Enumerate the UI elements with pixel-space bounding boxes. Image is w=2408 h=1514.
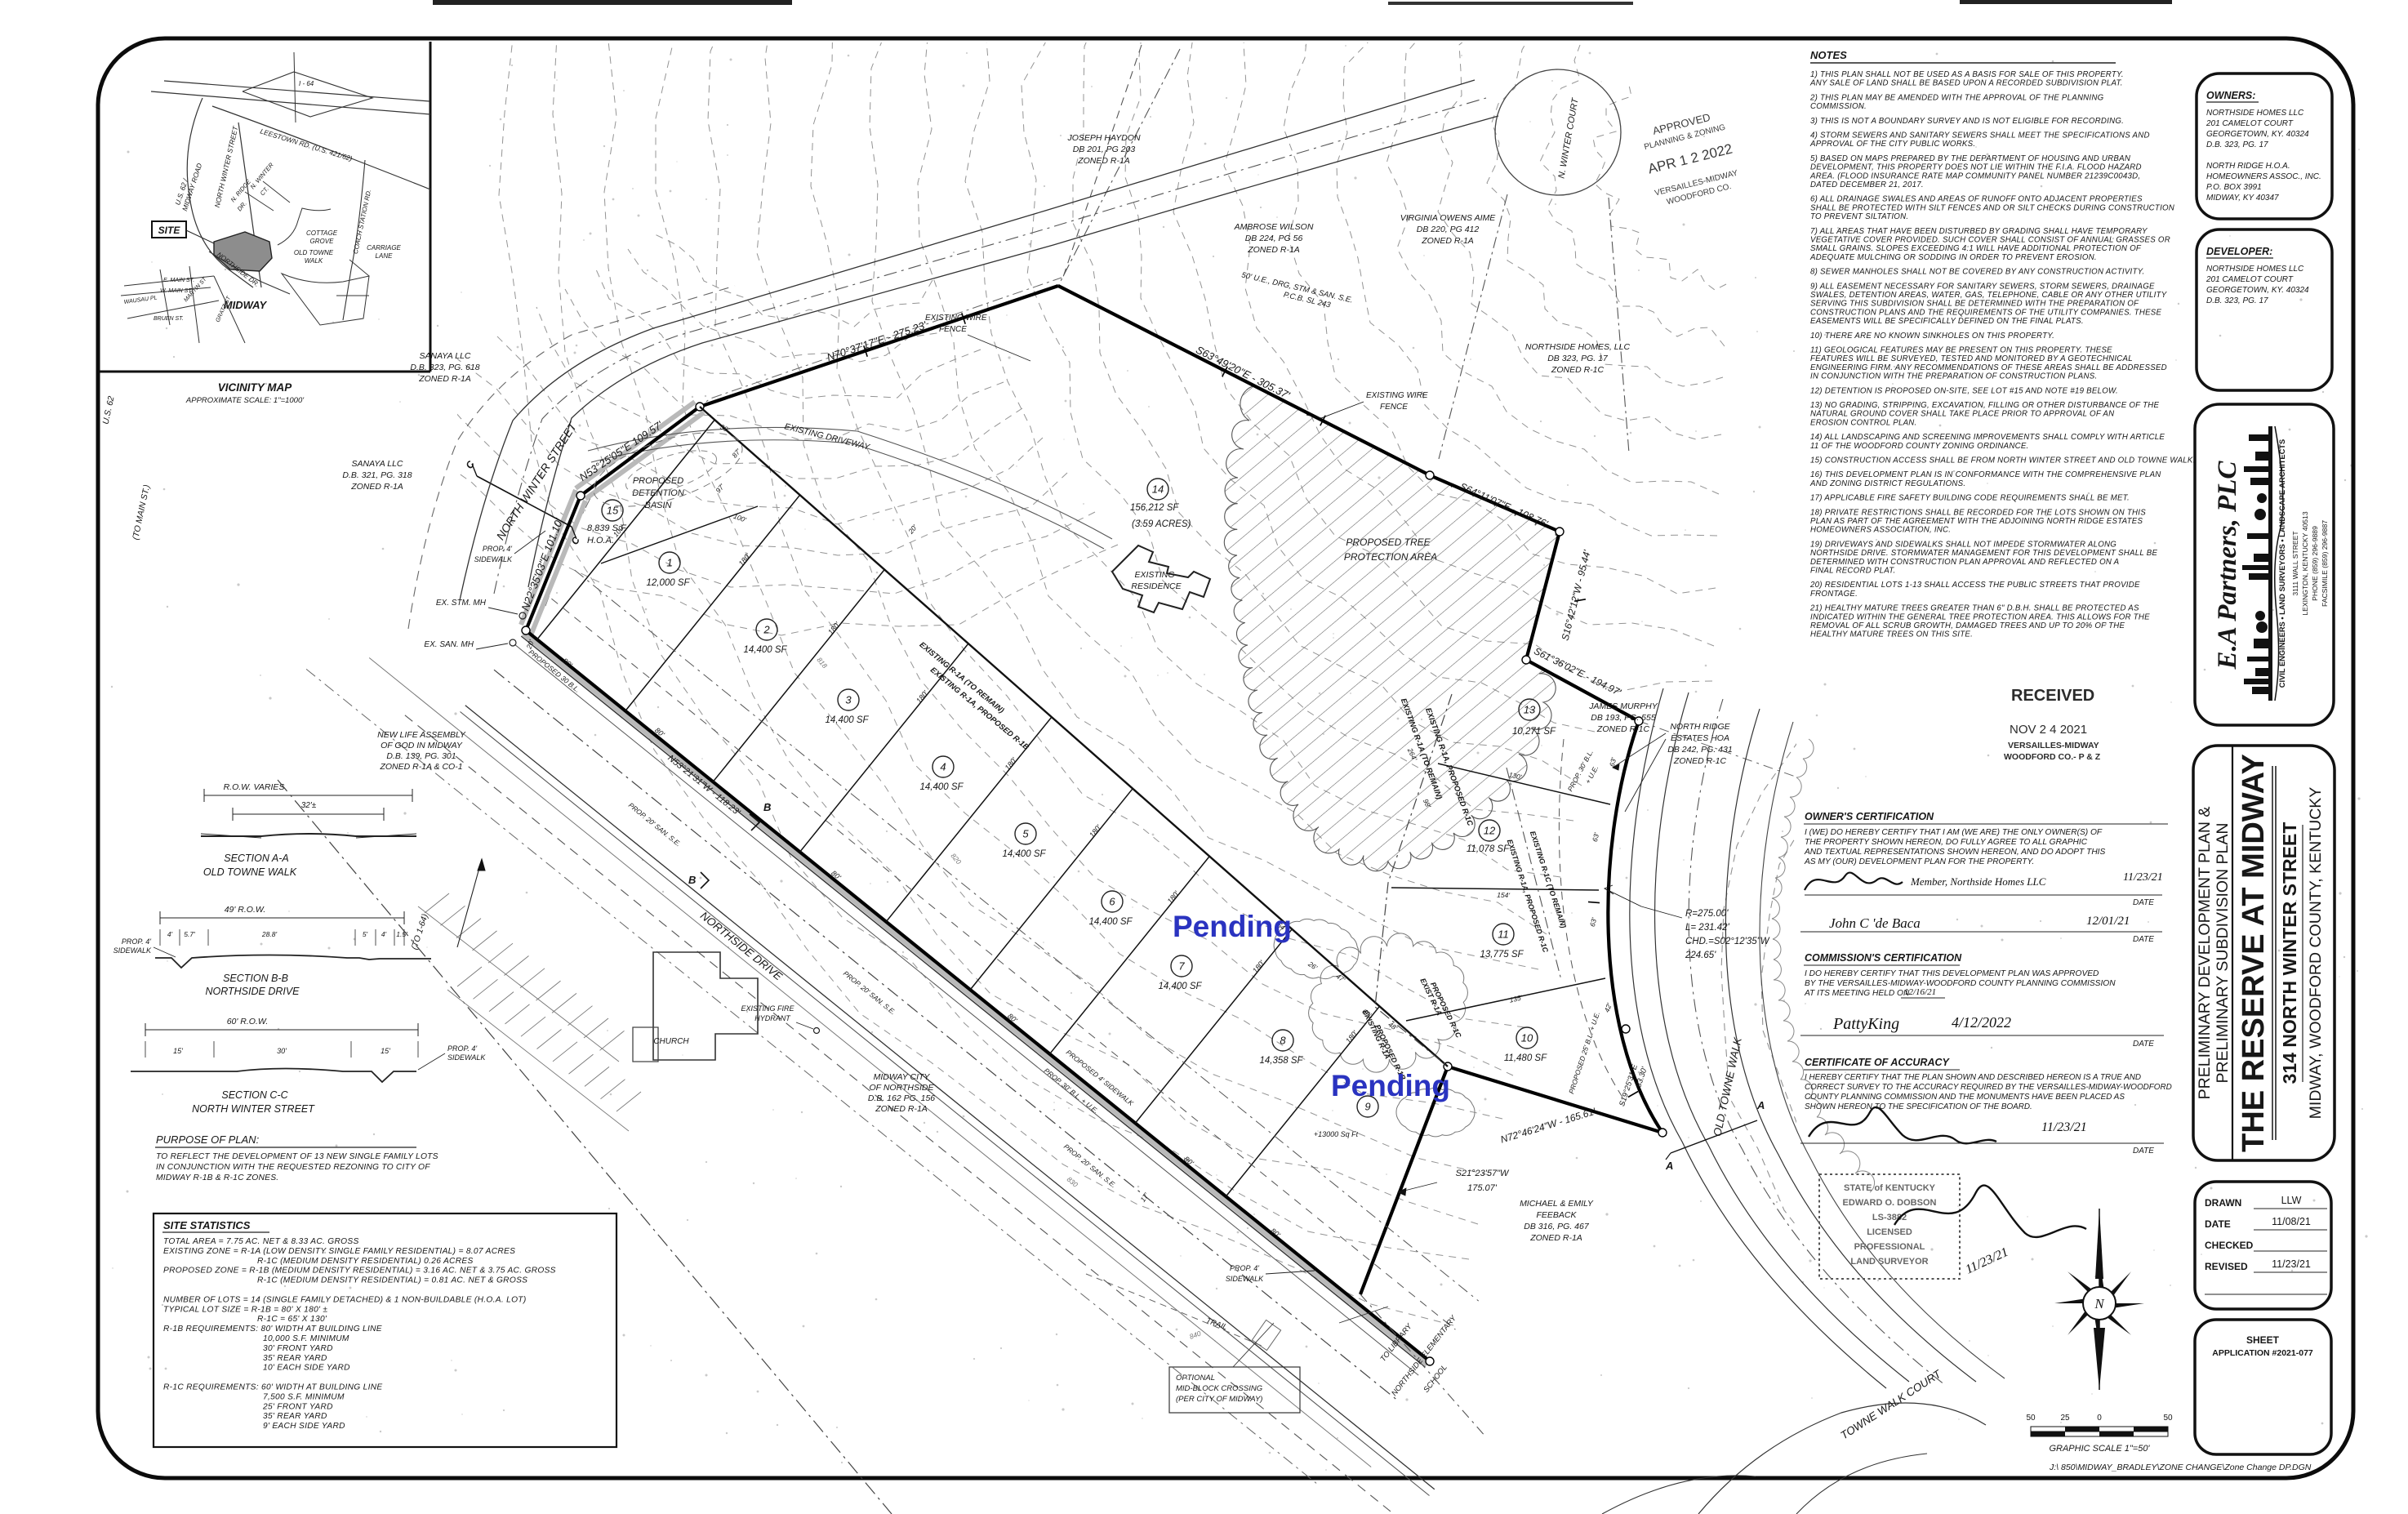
svg-text:P.O. BOX 3991: P.O. BOX 3991 [2206, 183, 2262, 192]
svg-text:3: 3 [845, 694, 852, 706]
svg-text:PattyKing: PattyKing [1832, 1015, 1899, 1033]
svg-text:AT ITS MEETING HELD ON: AT ITS MEETING HELD ON [1804, 989, 1910, 998]
svg-text:ZONED R-1A: ZONED R-1A [1077, 156, 1130, 166]
svg-text:LLW: LLW [2281, 1195, 2302, 1206]
svg-text:NUMBER OF LOTS = 14 (SINGLE: NUMBER OF LOTS = 14 (SINGLE FAMILY DETAC… [163, 1295, 527, 1304]
svg-text:4: 4 [940, 761, 946, 773]
svg-text:9) ALL EASEMENT NECESSARY FOR: 9) ALL EASEMENT NECESSARY FOR SANITARY S… [1810, 282, 2155, 291]
svg-text:SITE: SITE [158, 225, 181, 236]
svg-text:10,271 SF: 10,271 SF [1512, 727, 1556, 737]
svg-text:NORTHSIDE HOMES LLC: NORTHSIDE HOMES LLC [2206, 109, 2304, 118]
svg-text:6: 6 [1109, 896, 1115, 908]
svg-text:LEXINGTON, KENTUCKY 40513: LEXINGTON, KENTUCKY 40513 [2301, 511, 2309, 615]
svg-text:R=275.00': R=275.00' [1685, 909, 1729, 919]
svg-text:201 CAMELOT COURT: 201 CAMELOT COURT [2205, 119, 2294, 128]
svg-text:JAMES MURPHY: JAMES MURPHY [1588, 701, 1658, 711]
svg-text:PROP. 4': PROP. 4' [1230, 1264, 1259, 1272]
svg-text:FENCE: FENCE [1380, 403, 1408, 412]
svg-text:FEATURES WILL BE SURVEYED, TES: FEATURES WILL BE SURVEYED, TESTED AND MO… [1810, 354, 2133, 363]
svg-text:PROP. 4': PROP. 4' [447, 1044, 477, 1053]
svg-text:10,000 S.F. MINIMUM: 10,000 S.F. MINIMUM [263, 1334, 349, 1343]
svg-text:HEALTHY MATURE TREES ON THIS S: HEALTHY MATURE TREES ON THIS SITE. [1810, 630, 1973, 639]
svg-text:DATE: DATE [2133, 898, 2154, 907]
svg-text:I (WE) DO HEREBY CERTIFY TH: I (WE) DO HEREBY CERTIFY THAT I AM (WE A… [1805, 828, 2103, 837]
svg-text:OF GOD IN MIDWAY: OF GOD IN MIDWAY [381, 741, 463, 750]
svg-text:A: A [1665, 1160, 1673, 1172]
svg-text:DATED DECEMBER 21, 2017.: DATED DECEMBER 21, 2017. [1810, 180, 1924, 189]
svg-text:APPROVAL OF THE CITY PUBLIC WO: APPROVAL OF THE CITY PUBLIC WORKS. [1809, 140, 1975, 149]
svg-text:DATE: DATE [2133, 1040, 2154, 1049]
svg-text:John C 'de Baca: John C 'de Baca [1829, 915, 1921, 931]
svg-text:BASIN: BASIN [644, 501, 671, 510]
svg-text:ZONED R-1A: ZONED R-1A [875, 1104, 928, 1114]
svg-text:ZONED R-1A: ZONED R-1A [418, 374, 471, 384]
svg-text:PRELIMINARY SUBDIVISION PLAN: PRELIMINARY SUBDIVISION PLAN [2214, 823, 2232, 1084]
svg-text:ENGINEERING FIRM. ANY RECOMMEN: ENGINEERING FIRM. ANY RECOMMENDATIONS OF… [1810, 363, 2167, 372]
svg-text:ZONED R-1A & CO-1: ZONED R-1A & CO-1 [379, 762, 462, 772]
svg-text:8: 8 [1280, 1035, 1286, 1047]
svg-text:SIDEWALK: SIDEWALK [1226, 1275, 1264, 1283]
svg-text:175.07': 175.07' [1467, 1183, 1498, 1193]
svg-text:TO REFLECT THE DEVELOPMENT OF: TO REFLECT THE DEVELOPMENT OF 13 NEW SIN… [156, 1152, 438, 1161]
svg-text:PROPOSED ZONE = R-1B (MEDIUM D: PROPOSED ZONE = R-1B (MEDIUM DENSITY RES… [163, 1267, 556, 1276]
svg-text:BRUEN ST.: BRUEN ST. [154, 316, 184, 322]
svg-text:32'±: 32'± [301, 801, 317, 810]
svg-text:EXISTING FIRE: EXISTING FIRE [741, 1004, 795, 1013]
svg-text:60' R.O.W.: 60' R.O.W. [227, 1017, 269, 1026]
svg-text:35' REAR YARD: 35' REAR YARD [263, 1412, 327, 1421]
svg-text:IN CONJUNCTION WITH THE PREPAR: IN CONJUNCTION WITH THE PREPARATION OF C… [1810, 372, 2097, 381]
svg-text:SITE STATISTICS: SITE STATISTICS [163, 1219, 251, 1231]
svg-text:EXISTING: EXISTING [1134, 570, 1174, 580]
svg-text:4) STORM SEWERS AND SANITARY S: 4) STORM SEWERS AND SANITARY SEWERS SHAL… [1810, 131, 2150, 140]
svg-text:SWALES, DETENTION AREAS, WATER: SWALES, DETENTION AREAS, WATER, GAS, TEL… [1810, 291, 2168, 300]
svg-text:NORTHSIDE HOMES LLC: NORTHSIDE HOMES LLC [2206, 265, 2304, 274]
svg-text:LICENSED: LICENSED [1867, 1227, 1912, 1237]
svg-text:SECTION B-B: SECTION B-B [223, 973, 288, 984]
svg-text:1: 1 [666, 557, 672, 569]
svg-text:THE RESERVE AT MIDWAY: THE RESERVE AT MIDWAY [2237, 754, 2271, 1152]
svg-text:TYPICAL LOT SIZE = R-1B = 80': TYPICAL LOT SIZE = R-1B = 80' X 180' ± [163, 1305, 327, 1314]
svg-text:I HEREBY CERTIFY THAT THE: I HEREBY CERTIFY THAT THE PLAN SHOWN AND… [1805, 1073, 2141, 1082]
svg-text:JOSEPH HAYDON: JOSEPH HAYDON [1066, 133, 1140, 143]
svg-text:DB 242, PG. 431: DB 242, PG. 431 [1667, 745, 1732, 755]
svg-text:14,400 SF: 14,400 SF [1158, 982, 1202, 991]
svg-text:OPTIONAL: OPTIONAL [1176, 1374, 1215, 1383]
svg-text:VEGETATIVE COVER PROVIDED. SUC: VEGETATIVE COVER PROVIDED. SUCH COVER SH… [1810, 236, 2170, 245]
svg-text:7) ALL AREAS THAT HAVE BEEN D: 7) ALL AREAS THAT HAVE BEEN DISTURBED BY… [1810, 227, 2148, 236]
svg-text:SHEET: SHEET [2246, 1334, 2280, 1346]
svg-text:VICINITY MAP: VICINITY MAP [218, 381, 293, 394]
svg-text:15) CONSTRUCTION ACCESS SHALL: 15) CONSTRUCTION ACCESS SHALL BE FROM NO… [1810, 456, 2196, 465]
svg-text:VIRGINIA OWENS AIME: VIRGINIA OWENS AIME [1400, 213, 1496, 223]
svg-text:WALK: WALK [305, 257, 323, 265]
svg-text:16) THIS DEVELOPMENT PLAN IS I: 16) THIS DEVELOPMENT PLAN IS IN CONFORMA… [1810, 470, 2161, 479]
svg-text:PRELIMINARY DEVELOPMENT PLAN &: PRELIMINARY DEVELOPMENT PLAN & [2196, 807, 2214, 1100]
svg-text:20) RESIDENTIAL LOTS 1-13 SHAL: 20) RESIDENTIAL LOTS 1-13 SHALL ACCESS T… [1809, 581, 2140, 590]
svg-text:DATE: DATE [2133, 935, 2154, 944]
svg-text:10) THERE ARE NO KNOWN SINKHOL: 10) THERE ARE NO KNOWN SINKHOLES ON THIS… [1810, 332, 2054, 341]
svg-text:SANAYA LLC: SANAYA LLC [351, 459, 403, 469]
svg-text:INDICATED WITHIN THE GENERAL T: INDICATED WITHIN THE GENERAL TREE PROTEC… [1810, 612, 2150, 621]
svg-text:DATE: DATE [2133, 1147, 2154, 1156]
svg-text:MICHAEL & EMILY: MICHAEL & EMILY [1520, 1199, 1594, 1209]
svg-text:11/23/21: 11/23/21 [2123, 871, 2163, 884]
svg-text:30': 30' [277, 1047, 287, 1055]
svg-text:PLAN AS PART OF THE AGREEMENT: PLAN AS PART OF THE AGREEMENT WITH THE A… [1810, 517, 2143, 526]
svg-text:STATE of KENTUCKY: STATE of KENTUCKY [1844, 1183, 1936, 1193]
svg-text:PHONE (859) 296-9889: PHONE (859) 296-9889 [2311, 526, 2319, 601]
svg-text:R-1C REQUIREMENTS: 60' WIDTH A: R-1C REQUIREMENTS: 60' WIDTH AT BUILDING… [163, 1383, 382, 1392]
svg-text:DATE: DATE [2205, 1218, 2231, 1230]
svg-text:201 CAMELOT COURT: 201 CAMELOT COURT [2205, 275, 2294, 284]
svg-text:RECEIVED: RECEIVED [2011, 687, 2094, 705]
svg-text:DEVELOPER:: DEVELOPER: [2206, 246, 2272, 257]
svg-text:PROP. 4': PROP. 4' [122, 937, 151, 946]
svg-text:25' FRONT YARD: 25' FRONT YARD [262, 1402, 333, 1411]
svg-text:E.A Partners, PLC: E.A Partners, PLC [2213, 461, 2242, 670]
svg-text:PROFESSIONAL: PROFESSIONAL [1854, 1242, 1925, 1252]
svg-text:HYDRANT: HYDRANT [754, 1014, 791, 1022]
svg-text:APPLICATION #2021-077: APPLICATION #2021-077 [2212, 1348, 2313, 1358]
svg-text:BY THE VERSAILLES-MIDWAY-WOO: BY THE VERSAILLES-MIDWAY-WOODFORD COUNTY… [1805, 979, 2116, 988]
svg-text:5: 5 [1022, 828, 1029, 840]
svg-text:4': 4' [381, 930, 387, 938]
svg-text:I - 64: I - 64 [299, 80, 314, 87]
svg-text:(3.59 ACRES): (3.59 ACRES) [1132, 519, 1191, 529]
svg-text:W. MAIN ST: W. MAIN ST [160, 288, 192, 294]
svg-text:COTTAGE: COTTAGE [306, 229, 338, 237]
svg-text:11/23/21: 11/23/21 [2041, 1120, 2087, 1134]
svg-text:7: 7 [1178, 960, 1185, 973]
svg-text:18) PRIVATE RESTRICTIONS SHALL: 18) PRIVATE RESTRICTIONS SHALL BE RECORD… [1810, 508, 2146, 517]
svg-text:FENCE: FENCE [939, 325, 967, 334]
svg-text:11/23/21: 11/23/21 [2272, 1258, 2311, 1270]
svg-text:12) DETENTION IS PROPOSED ON-S: 12) DETENTION IS PROPOSED ON-SITE, SEE L… [1810, 386, 2118, 395]
svg-text:314 NORTH WINTER STREET: 314 NORTH WINTER STREET [2279, 822, 2300, 1084]
svg-text:FACSIMILE (859) 296-9887: FACSIMILE (859) 296-9887 [2321, 520, 2329, 607]
svg-text:Member, Northside Homes LLC: Member, Northside Homes LLC [1910, 875, 2046, 888]
svg-text:ZONED R-1A: ZONED R-1A [1421, 236, 1474, 246]
svg-text:GEORGETOWN, KY. 40324: GEORGETOWN, KY. 40324 [2206, 286, 2309, 295]
svg-text:OWNERS:: OWNERS: [2206, 90, 2255, 101]
svg-text:ANY SALE OF LAND SHALL BE BASE: ANY SALE OF LAND SHALL BE BASED UPON A R… [1809, 79, 2123, 88]
svg-text:D.B. 321, PG. 318: D.B. 321, PG. 318 [342, 470, 412, 480]
svg-text:R-1C (MEDIUM DENSITY RESIDENTI: R-1C (MEDIUM DENSITY RESIDENTIAL) = 0.81… [257, 1276, 527, 1285]
svg-text:7,500 S.F. MINIMUM: 7,500 S.F. MINIMUM [263, 1392, 345, 1401]
svg-text:5) BASED ON MAPS PREPARED BY T: 5) BASED ON MAPS PREPARED BY THE DEPARTM… [1810, 154, 2130, 163]
svg-text:FEEBACK: FEEBACK [1536, 1210, 1577, 1220]
svg-text:14) ALL LANDSCAPING AND SCREEN: 14) ALL LANDSCAPING AND SCREENING IMPROV… [1810, 433, 2165, 442]
svg-text:E. MAIN ST.: E. MAIN ST. [163, 278, 194, 283]
svg-text:APPROXIMATE SCALE: 1"=1000': APPROXIMATE SCALE: 1"=1000' [185, 396, 305, 405]
svg-text:R-1B REQUIREMENTS: 80' WIDTH A: R-1B REQUIREMENTS: 80' WIDTH AT BUILDING… [163, 1325, 382, 1334]
svg-text:ZONED R-1A: ZONED R-1A [1247, 245, 1300, 255]
svg-text:12/16/21: 12/16/21 [1904, 987, 1936, 997]
svg-text:SERVING THIS SUBDIVISION SHALL: SERVING THIS SUBDIVISION SHALL BE DETERM… [1810, 300, 2139, 309]
svg-text:156,212 SF: 156,212 SF [1130, 503, 1179, 513]
svg-text:ADEQUATE MULCHING OR SODDING I: ADEQUATE MULCHING OR SODDING IN ORDER TO… [1809, 253, 2097, 262]
svg-text:DRAWN: DRAWN [2205, 1197, 2241, 1209]
svg-text:EASEMENTS WILL BE SPECIFICALLY: EASEMENTS WILL BE SPECIFICALLY DEFINED O… [1810, 317, 2084, 326]
svg-text:21) HEALTHY MATURE TREES GREAT: 21) HEALTHY MATURE TREES GREATER THAN 6"… [1809, 604, 2139, 613]
svg-text:CERTIFICATE OF ACCURACY: CERTIFICATE OF ACCURACY [1805, 1057, 1951, 1068]
svg-text:COMMISSION.: COMMISSION. [1810, 102, 1867, 111]
svg-text:D.B. 139, PG. 301: D.B. 139, PG. 301 [386, 751, 456, 761]
svg-text:GROVE: GROVE [310, 238, 335, 245]
svg-text:ZONED R-1A: ZONED R-1A [350, 482, 403, 492]
svg-text:AND ZONING DISTRICT REGULATION: AND ZONING DISTRICT REGULATIONS. [1809, 479, 1965, 488]
svg-text:SECTION C-C: SECTION C-C [221, 1089, 288, 1101]
svg-text:ESTATES HOA: ESTATES HOA [1671, 733, 1729, 743]
svg-text:ZONED R-1C: ZONED R-1C [1596, 724, 1650, 734]
svg-text:154': 154' [1497, 891, 1511, 900]
svg-text:MID-BLOCK CROSSING: MID-BLOCK CROSSING [1176, 1384, 1262, 1393]
svg-text:3111 WALL STREET: 3111 WALL STREET [2291, 531, 2299, 596]
svg-text:17) APPLICABLE FIRE SAFETY BUI: 17) APPLICABLE FIRE SAFETY BUILDING CODE… [1810, 494, 2130, 503]
svg-text:8) SEWER MANHOLES SHALL NOT BE: 8) SEWER MANHOLES SHALL NOT BE COVERED B… [1810, 268, 2144, 277]
svg-text:NORTH RIDGE: NORTH RIDGE [1670, 722, 1730, 732]
svg-text:WOODFORD CO.- P & Z: WOODFORD CO.- P & Z [2004, 752, 2101, 762]
svg-text:DETERMINED WITH CONSTRUCTION P: DETERMINED WITH CONSTRUCTION PLAN APPROV… [1810, 558, 2119, 567]
svg-text:50: 50 [2026, 1414, 2036, 1423]
svg-text:S21°23'57"W: S21°23'57"W [1456, 1169, 1510, 1178]
svg-text:OLD TOWNE WALK: OLD TOWNE WALK [203, 866, 297, 878]
svg-text:DB 224, PG 56: DB 224, PG 56 [1245, 234, 1303, 243]
svg-text:PURPOSE OF PLAN:: PURPOSE OF PLAN: [156, 1133, 260, 1146]
svg-text:D.B. 323, PG. 17: D.B. 323, PG. 17 [2206, 140, 2268, 149]
svg-text:D.B. 162 PG. 156: D.B. 162 PG. 156 [868, 1093, 935, 1103]
svg-text:I DO HEREBY CERTIFY THAT T: I DO HEREBY CERTIFY THAT THIS DEVELOPMEN… [1805, 969, 2099, 978]
svg-text:1) THIS PLAN SHALL NOT BE USED: 1) THIS PLAN SHALL NOT BE USED AS A BASI… [1810, 70, 2124, 79]
svg-text:+13000 Sq Ft: +13000 Sq Ft [1314, 1130, 1359, 1138]
svg-text:DETENTION: DETENTION [632, 488, 684, 498]
svg-text:50: 50 [2163, 1414, 2173, 1423]
svg-text:B: B [688, 874, 696, 886]
svg-text:NATURAL GROUND COVER SHALL TAK: NATURAL GROUND COVER SHALL TAKE PLACE PR… [1810, 410, 2114, 419]
svg-text:3) THIS IS NOT A BOUNDARY SURV: 3) THIS IS NOT A BOUNDARY SURVEY AND IS … [1810, 117, 2124, 126]
svg-text:10: 10 [1521, 1032, 1533, 1044]
svg-text:MIDWAY, KY 40347: MIDWAY, KY 40347 [2206, 194, 2279, 203]
svg-text:11) GEOLOGICAL FEATURES MAY BE: 11) GEOLOGICAL FEATURES MAY BE PRESENT O… [1810, 346, 2112, 355]
svg-text:2: 2 [763, 624, 770, 636]
svg-text:0: 0 [2097, 1414, 2102, 1423]
svg-text:224.65': 224.65' [1685, 951, 1716, 960]
svg-text:AND TEXTUAL REPRESENTATIONS: AND TEXTUAL REPRESENTATIONS SHOWN HEREON… [1804, 848, 2106, 857]
svg-text:THE PROPERTY SHOWN HEREON,: THE PROPERTY SHOWN HEREON, DO FULLY AGRE… [1805, 838, 2088, 847]
svg-text:NORTH WINTER STREET: NORTH WINTER STREET [192, 1103, 315, 1115]
svg-text:SHALL BE PROTECTED WITH SILT F: SHALL BE PROTECTED WITH SILT FENCES AND … [1810, 203, 2174, 212]
svg-text:LANE: LANE [376, 252, 394, 260]
svg-text:HOMEOWNERS ASSOCIATION, INC.: HOMEOWNERS ASSOCIATION, INC. [1810, 526, 1951, 535]
svg-text:LAND SURVEYOR: LAND SURVEYOR [1850, 1257, 1928, 1267]
svg-text:SIDEWALK: SIDEWALK [474, 555, 513, 563]
svg-text:14,400 SF: 14,400 SF [1088, 917, 1133, 927]
svg-text:RESIDENCE: RESIDENCE [1131, 581, 1182, 591]
svg-text:DB 316, PG. 467: DB 316, PG. 467 [1524, 1222, 1590, 1231]
svg-text:11,480 SF: 11,480 SF [1504, 1053, 1547, 1063]
svg-text:11: 11 [1498, 928, 1509, 941]
svg-text:SIDEWALK: SIDEWALK [447, 1053, 486, 1062]
svg-text:19) DRIVEWAYS AND SIDEWALKS SH: 19) DRIVEWAYS AND SIDEWALKS SHALL NOT IM… [1810, 540, 2116, 549]
svg-text:14,400 SF: 14,400 SF [825, 715, 869, 725]
svg-text:SANAYA LLC: SANAYA LLC [419, 351, 470, 361]
svg-text:11 OF THE WOODFORD COUNTY ZONI: 11 OF THE WOODFORD COUNTY ZONING ORDINAN… [1810, 442, 2028, 451]
svg-text:DB 323, PG. 17: DB 323, PG. 17 [1547, 354, 1609, 363]
svg-text:MIDWAY R-1B & R-1C ZONES.: MIDWAY R-1B & R-1C ZONES. [156, 1173, 278, 1182]
svg-text:25: 25 [2060, 1414, 2070, 1423]
svg-text:VERSAILLES-MIDWAY: VERSAILLES-MIDWAY [2008, 741, 2099, 750]
svg-text:SIDEWALK: SIDEWALK [114, 946, 152, 955]
svg-text:35' REAR YARD: 35' REAR YARD [263, 1354, 327, 1363]
svg-text:D.B. 323, PG. 618: D.B. 323, PG. 618 [410, 363, 479, 372]
svg-text:J:\ 850\MIDWAY_BRADLEY\ZONE CH: J:\ 850\MIDWAY_BRADLEY\ZONE CHANGE\Zone … [2049, 1463, 2312, 1472]
svg-text:B: B [763, 801, 771, 813]
svg-text:11/08/21: 11/08/21 [2272, 1216, 2311, 1227]
svg-text:SMALL GRAINS. SLOPES EXCEEDING: SMALL GRAINS. SLOPES EXCEEDING 4:1 WILL … [1810, 244, 2142, 253]
svg-text:4/12/2022: 4/12/2022 [1952, 1014, 2011, 1031]
svg-text:NORTHSIDE HOMES, LLC: NORTHSIDE HOMES, LLC [1525, 342, 1631, 352]
svg-text:12/01/21: 12/01/21 [2086, 915, 2130, 928]
svg-text:4': 4' [167, 930, 173, 938]
svg-text:CIVIL ENGINEERS • LAND SURVEYO: CIVIL ENGINEERS • LAND SURVEYORS • LANDS… [2278, 439, 2286, 688]
svg-text:DB 201, PG 203: DB 201, PG 203 [1073, 145, 1136, 154]
svg-text:R.O.W. VARIES: R.O.W. VARIES [224, 782, 285, 792]
svg-text:CHURCH: CHURCH [653, 1037, 689, 1046]
svg-text:14,400 SF: 14,400 SF [1002, 849, 1046, 859]
svg-text:ZONED R-1C: ZONED R-1C [1551, 365, 1605, 375]
svg-text:15': 15' [173, 1047, 183, 1055]
svg-text:TO PREVENT SILTATION.: TO PREVENT SILTATION. [1810, 212, 1908, 221]
svg-text:AMBROSE WILSON: AMBROSE WILSON [1234, 222, 1314, 232]
svg-text:REVISED: REVISED [2205, 1261, 2248, 1272]
svg-text:H.O.A.: H.O.A. [587, 536, 614, 545]
svg-text:L= 231.42': L= 231.42' [1685, 923, 1729, 933]
svg-text:NORTHSIDE DRIVE. STORMWATER MA: NORTHSIDE DRIVE. STORMWATER MANAGEMENT F… [1810, 549, 2157, 558]
svg-text:OLD TOWNE: OLD TOWNE [294, 249, 334, 256]
svg-text:DB 220, PG 412: DB 220, PG 412 [1417, 225, 1480, 234]
svg-text:GRAPHIC SCALE 1"=50': GRAPHIC SCALE 1"=50' [2049, 1444, 2150, 1454]
svg-text:30' FRONT YARD: 30' FRONT YARD [263, 1344, 333, 1353]
svg-text:SECTION A-A: SECTION A-A [224, 853, 288, 864]
svg-text:EROSION CONTROL PLAN.: EROSION CONTROL PLAN. [1810, 418, 1917, 427]
svg-text:NORTH RIDGE H.O.A.: NORTH RIDGE H.O.A. [2206, 162, 2290, 171]
svg-text:15': 15' [381, 1047, 390, 1055]
svg-text:EX. SAN. MH: EX. SAN. MH [424, 640, 474, 649]
svg-text:EX. STM. MH: EX. STM. MH [436, 599, 487, 608]
svg-text:14,358 SF: 14,358 SF [1259, 1056, 1303, 1066]
svg-text:12: 12 [1484, 825, 1496, 837]
svg-text:PROPOSED: PROPOSED [633, 476, 683, 486]
svg-text:6) ALL DRAINAGE SWALES AND ARE: 6) ALL DRAINAGE SWALES AND AREAS OF RUNO… [1810, 195, 2143, 204]
svg-text:1.5': 1.5' [396, 930, 407, 938]
svg-text:NOTES: NOTES [1810, 49, 1847, 61]
svg-text:AREA. (FLOOD INSURANCE RATE MA: AREA. (FLOOD INSURANCE RATE MAP COMMUNIT… [1809, 171, 2140, 180]
svg-text:ZONED R-1A: ZONED R-1A [1529, 1233, 1582, 1243]
svg-text:D.B. 323, PG. 17: D.B. 323, PG. 17 [2206, 296, 2268, 305]
svg-text:EXISTING WIRE: EXISTING WIRE [1366, 391, 1428, 400]
svg-text:OF NORTHSIDE: OF NORTHSIDE [870, 1083, 935, 1093]
svg-text:5.7': 5.7' [184, 930, 195, 938]
svg-text:AS MY (OUR) DEVELOPMENT P: AS MY (OUR) DEVELOPMENT PLAN FOR THE PRO… [1804, 857, 2034, 866]
svg-text:NOV 2 4 2021: NOV 2 4 2021 [2010, 723, 2087, 737]
svg-text:PROTECTION AREA: PROTECTION AREA [1344, 551, 1437, 563]
svg-text:DEVELOPMENT, THIS PROPERTY DOE: DEVELOPMENT, THIS PROPERTY DOES NOT LIE … [1810, 163, 2142, 172]
svg-text:R-1C (MEDIUM DENSITY RESIDENTI: R-1C (MEDIUM DENSITY RESIDENTIAL) 0.26 A… [257, 1257, 474, 1266]
svg-text:DB 193, PG. 555: DB 193, PG. 555 [1591, 713, 1656, 723]
svg-text:COUNTY PLANNING COMMISSION: COUNTY PLANNING COMMISSION AND THE MONUM… [1805, 1093, 2125, 1102]
svg-text:COMMISSION'S CERTIFICATION: COMMISSION'S CERTIFICATION [1805, 952, 1962, 964]
svg-text:CHD.=S02°12'35"W: CHD.=S02°12'35"W [1685, 937, 1770, 946]
svg-text:CHECKED: CHECKED [2205, 1240, 2254, 1251]
svg-text:(PER CITY OF MIDWAY): (PER CITY OF MIDWAY) [1176, 1395, 1262, 1404]
svg-text:NORTHSIDE DRIVE: NORTHSIDE DRIVE [205, 986, 300, 997]
svg-text:OWNER'S CERTIFICATION: OWNER'S CERTIFICATION [1805, 811, 1934, 822]
svg-text:9' EACH SIDE YARD: 9' EACH SIDE YARD [263, 1422, 345, 1431]
svg-text:EXISTING ZONE = R-1A (LOW D: EXISTING ZONE = R-1A (LOW DENSITY SINGLE… [163, 1247, 515, 1256]
svg-text:11,078 SF: 11,078 SF [1467, 844, 1510, 854]
svg-text:Pending: Pending [1331, 1069, 1450, 1102]
svg-text:NEW LIFE ASSEMBLY: NEW LIFE ASSEMBLY [377, 730, 466, 740]
svg-text:FRONTAGE.: FRONTAGE. [1810, 590, 1858, 599]
svg-text:R-1C = 65' X 130': R-1C = 65' X 130' [257, 1315, 327, 1324]
svg-text:12,000 SF: 12,000 SF [646, 578, 690, 588]
svg-text:SHOWN HEREON TO THE SPECIF: SHOWN HEREON TO THE SPECIFICATION OF THE… [1805, 1102, 2032, 1111]
svg-text:14: 14 [1152, 483, 1164, 496]
svg-text:PROPOSED TREE: PROPOSED TREE [1346, 537, 1431, 548]
svg-text:GEORGETOWN, KY. 40324: GEORGETOWN, KY. 40324 [2206, 130, 2309, 139]
svg-text:2) THIS PLAN MAY BE AMENDED WI: 2) THIS PLAN MAY BE AMENDED WITH THE APP… [1809, 93, 2104, 102]
svg-text:CORRECT SURVEY TO THE ACCU: CORRECT SURVEY TO THE ACCURACY REQUIRED … [1805, 1083, 2172, 1092]
svg-text:A: A [1756, 1099, 1765, 1111]
svg-text:N: N [2094, 1296, 2105, 1311]
svg-text:MIDWAY, WOODFORD COUNTY, KENTU: MIDWAY, WOODFORD COUNTY, KENTUCKY [2307, 787, 2325, 1120]
svg-text:EDWARD O. DOBSON: EDWARD O. DOBSON [1843, 1198, 1937, 1208]
svg-text:HOMEOWNERS ASSOC., INC.: HOMEOWNERS ASSOC., INC. [2206, 172, 2321, 181]
svg-text:REMOVAL OF ALL SCRUB GROWTH, D: REMOVAL OF ALL SCRUB GROWTH, DAMAGED TRE… [1810, 621, 2125, 630]
svg-text:LS-3882: LS-3882 [1872, 1213, 1907, 1222]
svg-text:13: 13 [1524, 704, 1536, 716]
svg-text:13,775 SF: 13,775 SF [1480, 950, 1524, 960]
svg-text:IN CONJUNCTION WITH THE REQUES: IN CONJUNCTION WITH THE REQUESTED REZONI… [156, 1163, 430, 1172]
svg-text:EXISTING WIRE: EXISTING WIRE [925, 314, 987, 323]
svg-text:CARRIAGE: CARRIAGE [367, 244, 401, 252]
svg-text:14,400 SF: 14,400 SF [919, 782, 964, 792]
svg-text:Pending: Pending [1173, 910, 1292, 943]
svg-text:PROP. 4': PROP. 4' [483, 545, 512, 553]
svg-text:ZONED R-1C: ZONED R-1C [1673, 756, 1727, 766]
svg-text:MIDWAY CITY: MIDWAY CITY [874, 1072, 931, 1082]
svg-text:5': 5' [363, 930, 368, 938]
svg-text:14,400 SF: 14,400 SF [743, 645, 787, 655]
svg-text:28.8': 28.8' [261, 930, 278, 938]
svg-text:10' EACH SIDE YARD: 10' EACH SIDE YARD [263, 1364, 350, 1373]
svg-text:TOTAL AREA = 7.75 AC. NET & 8.: TOTAL AREA = 7.75 AC. NET & 8.33 AC. GRO… [163, 1237, 359, 1246]
svg-text:13) NO GRADING, STRIPPING, EXC: 13) NO GRADING, STRIPPING, EXCAVATION, F… [1810, 401, 2160, 410]
svg-text:CONSTRUCTION PLANS AND THE REQ: CONSTRUCTION PLANS AND THE REQUIREMENTS … [1810, 308, 2162, 317]
svg-text:FINAL RECORD PLAT.: FINAL RECORD PLAT. [1810, 567, 1895, 576]
svg-text:49' R.O.W.: 49' R.O.W. [225, 905, 266, 915]
